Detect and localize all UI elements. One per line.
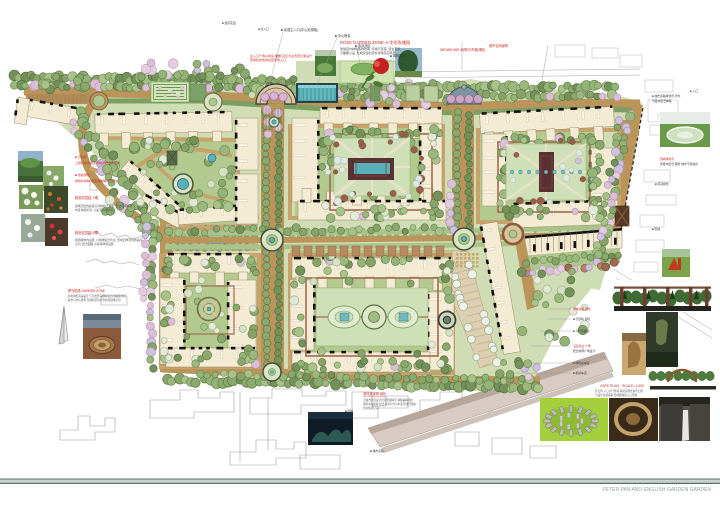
svg-text:■ 中心喷泉: ■ 中心喷泉 [335, 33, 351, 38]
svg-text:精品花园区 1期: 精品花园区 1期 [75, 195, 99, 200]
svg-text:利用地形高差设计下沉式罗马剧场 结合半圆形台阶: 利用地形高差设计下沉式罗马剧场 结合半圆形台阶 [68, 294, 126, 298]
svg-text:沿城市河道设计滨河景观绿带 种植垂柳池杉: 沿城市河道设计滨河景观绿带 种植垂柳池杉 [363, 398, 413, 402]
svg-text:■ 非机动车道: ■ 非机动车道 [573, 361, 590, 365]
svg-text:等耐水湿树种 结合亲水平台与步道 形成开放的: 等耐水湿树种 结合亲水平台与步道 形成开放的 [363, 402, 417, 406]
svg-text:■ 围墙: ■ 围墙 [345, 409, 353, 413]
svg-text:结合树阵广场设计: 结合树阵广场设计 [573, 349, 596, 353]
svg-text:精品花园区 2期: 精品花园区 2期 [75, 230, 99, 235]
svg-text:■ 市政绿化: ■ 市政绿化 [75, 172, 90, 177]
svg-text:■ 宅间绿化: ■ 宅间绿化 [655, 182, 669, 186]
svg-text:围墙绿化带: 围墙绿化带 [660, 157, 674, 161]
svg-text:春色叶树种·樱花海棠等开花乔木: 春色叶树种·樱花海棠等开花乔木 [75, 178, 118, 183]
svg-text:与雕塑小品, 形成浪漫的英伦玫瑰花园场景: 与雕塑小品, 形成浪漫的英伦玫瑰花园场景 [340, 50, 396, 55]
svg-text:空间, 结合园路 亭廊等休闲设施: 空间, 结合园路 亭廊等休闲设施 [75, 242, 114, 246]
svg-text:GATE PLAN SCALE=1:300: GATE PLAN SCALE=1:300 [600, 384, 644, 388]
svg-text:ROSE GARDEN ZONE 十字形玫瑰园: ROSE GARDEN ZONE 十字形玫瑰园 [340, 39, 410, 46]
svg-text:■ 行道树 香樟: ■ 行道树 香樟 [573, 317, 590, 321]
svg-text:城市道路 绿化: 城市道路 绿化 [573, 307, 591, 311]
svg-text:罗马剧场 GARDEN ZONE: 罗马剧场 GARDEN ZONE [68, 288, 105, 293]
svg-text:■ 入口: ■ 入口 [690, 89, 698, 93]
svg-text:■ 人行道铺装: ■ 人行道铺装 [573, 329, 590, 333]
svg-text:滨河景观带 绿化: 滨河景观带 绿化 [363, 391, 387, 396]
svg-text:■ 次入口: ■ 次入口 [258, 27, 269, 31]
svg-text:为设计灵感来源 形成独特的入口形象: 为设计灵感来源 形成独特的入口形象 [595, 393, 638, 397]
svg-text:■ 行道树: ■ 行道树 [75, 154, 87, 159]
svg-text:布置休闲步道, 儿童活动场地等: 布置休闲步道, 儿童活动场地等 [75, 208, 113, 212]
svg-text:沿街商业 广场: 沿街商业 广场 [573, 344, 591, 348]
svg-text:城市空间绿带: 城市空间绿带 [489, 43, 509, 48]
svg-text:滨水休闲空间: 滨水休闲空间 [363, 406, 379, 410]
svg-text:看台与中心舞台 形成社区的室外交流剧场空间: 看台与中心舞台 形成社区的室外交流剧场空间 [68, 298, 121, 302]
svg-text:上层乔木选用香樟等常绿乔木形成: 上层乔木选用香樟等常绿乔木形成 [75, 160, 120, 165]
svg-text:■ 围墙: ■ 围墙 [652, 227, 660, 231]
svg-text:PETER PAN AND ENGLISH GARDEN G: PETER PAN AND ENGLISH GARDEN GARDEN [602, 487, 711, 493]
svg-text:乔灌木结合 隔离 城市干道噪音: 乔灌木结合 隔离 城市干道噪音 [660, 162, 698, 166]
svg-text:WE/WE/WE 树阵与市政绿化: WE/WE/WE 树阵与市政绿化 [440, 47, 486, 52]
svg-text:形成标志性的社区形象入口: 形成标志性的社区形象入口 [250, 57, 286, 62]
svg-text:■ 迷宫花园: ■ 迷宫花园 [222, 21, 236, 25]
svg-text:与灌木结合种植: 与灌木结合种植 [652, 99, 672, 103]
svg-text:■ 景观主入口(中心景观轴): ■ 景观主入口(中心景观轴) [281, 27, 318, 32]
svg-text:■ 城市道路: ■ 城市道路 [370, 449, 384, 453]
svg-text:■ 机动车道: ■ 机动车道 [573, 371, 587, 375]
svg-text:■ 城市道路绿化带 乔木: ■ 城市道路绿化带 乔木 [652, 94, 681, 98]
svg-text:巨石阵 入口大门景墙 采用英国史前巨石阵: 巨石阵 入口大门景墙 采用英国史前巨石阵 [595, 389, 644, 393]
